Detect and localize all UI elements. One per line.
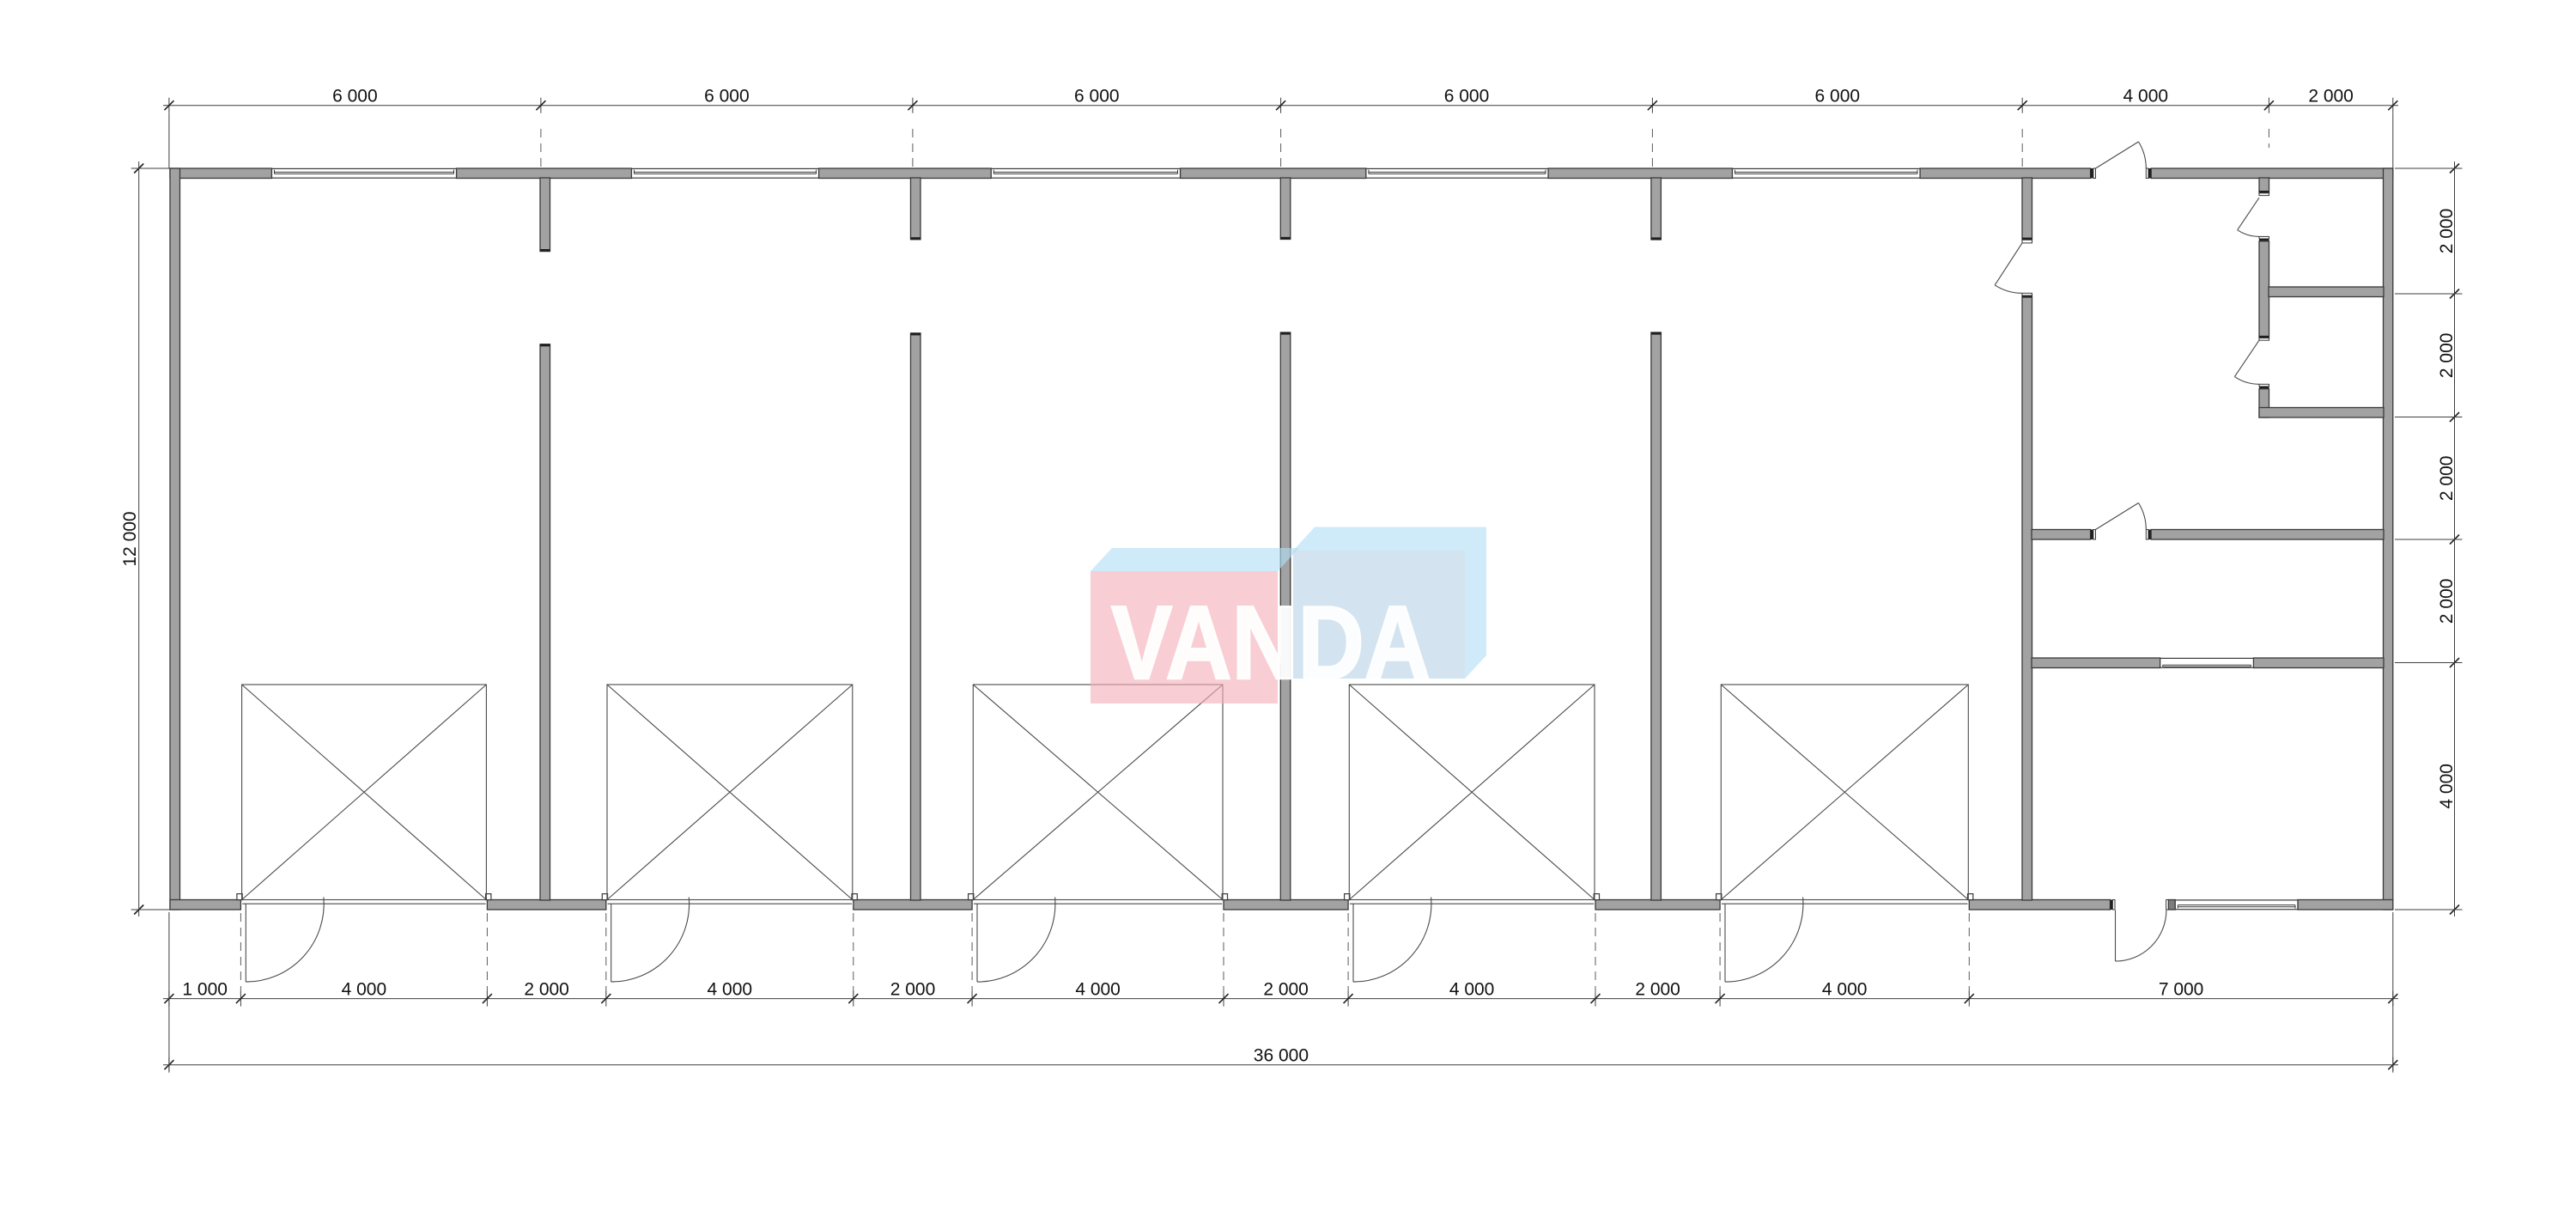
- svg-text:4 000: 4 000: [2123, 87, 2169, 107]
- svg-text:6 000: 6 000: [332, 87, 378, 107]
- svg-text:1 000: 1 000: [182, 980, 228, 1000]
- svg-text:2 000: 2 000: [1263, 980, 1309, 1000]
- svg-text:2 000: 2 000: [1635, 980, 1680, 1000]
- svg-text:VANDA: VANDA: [1111, 584, 1431, 701]
- svg-text:36 000: 36 000: [1254, 1046, 1309, 1066]
- svg-text:6 000: 6 000: [1074, 87, 1120, 107]
- svg-text:4 000: 4 000: [342, 980, 387, 1000]
- svg-text:4 000: 4 000: [1822, 980, 1868, 1000]
- svg-text:2 000: 2 000: [2437, 579, 2457, 624]
- svg-text:2 000: 2 000: [2308, 87, 2354, 107]
- svg-text:4 000: 4 000: [708, 980, 753, 1000]
- svg-text:2 000: 2 000: [890, 980, 936, 1000]
- svg-text:4 000: 4 000: [1075, 980, 1121, 1000]
- svg-text:12 000: 12 000: [120, 511, 140, 566]
- svg-text:7 000: 7 000: [2159, 980, 2204, 1000]
- svg-text:4 000: 4 000: [2437, 764, 2457, 809]
- svg-text:2 000: 2 000: [2437, 209, 2457, 254]
- svg-text:6 000: 6 000: [1815, 87, 1861, 107]
- svg-text:2 000: 2 000: [524, 980, 569, 1000]
- svg-text:2 000: 2 000: [2437, 456, 2457, 502]
- svg-text:6 000: 6 000: [1444, 87, 1490, 107]
- svg-text:6 000: 6 000: [704, 87, 750, 107]
- svg-text:4 000: 4 000: [1449, 980, 1495, 1000]
- svg-text:2 000: 2 000: [2437, 333, 2457, 379]
